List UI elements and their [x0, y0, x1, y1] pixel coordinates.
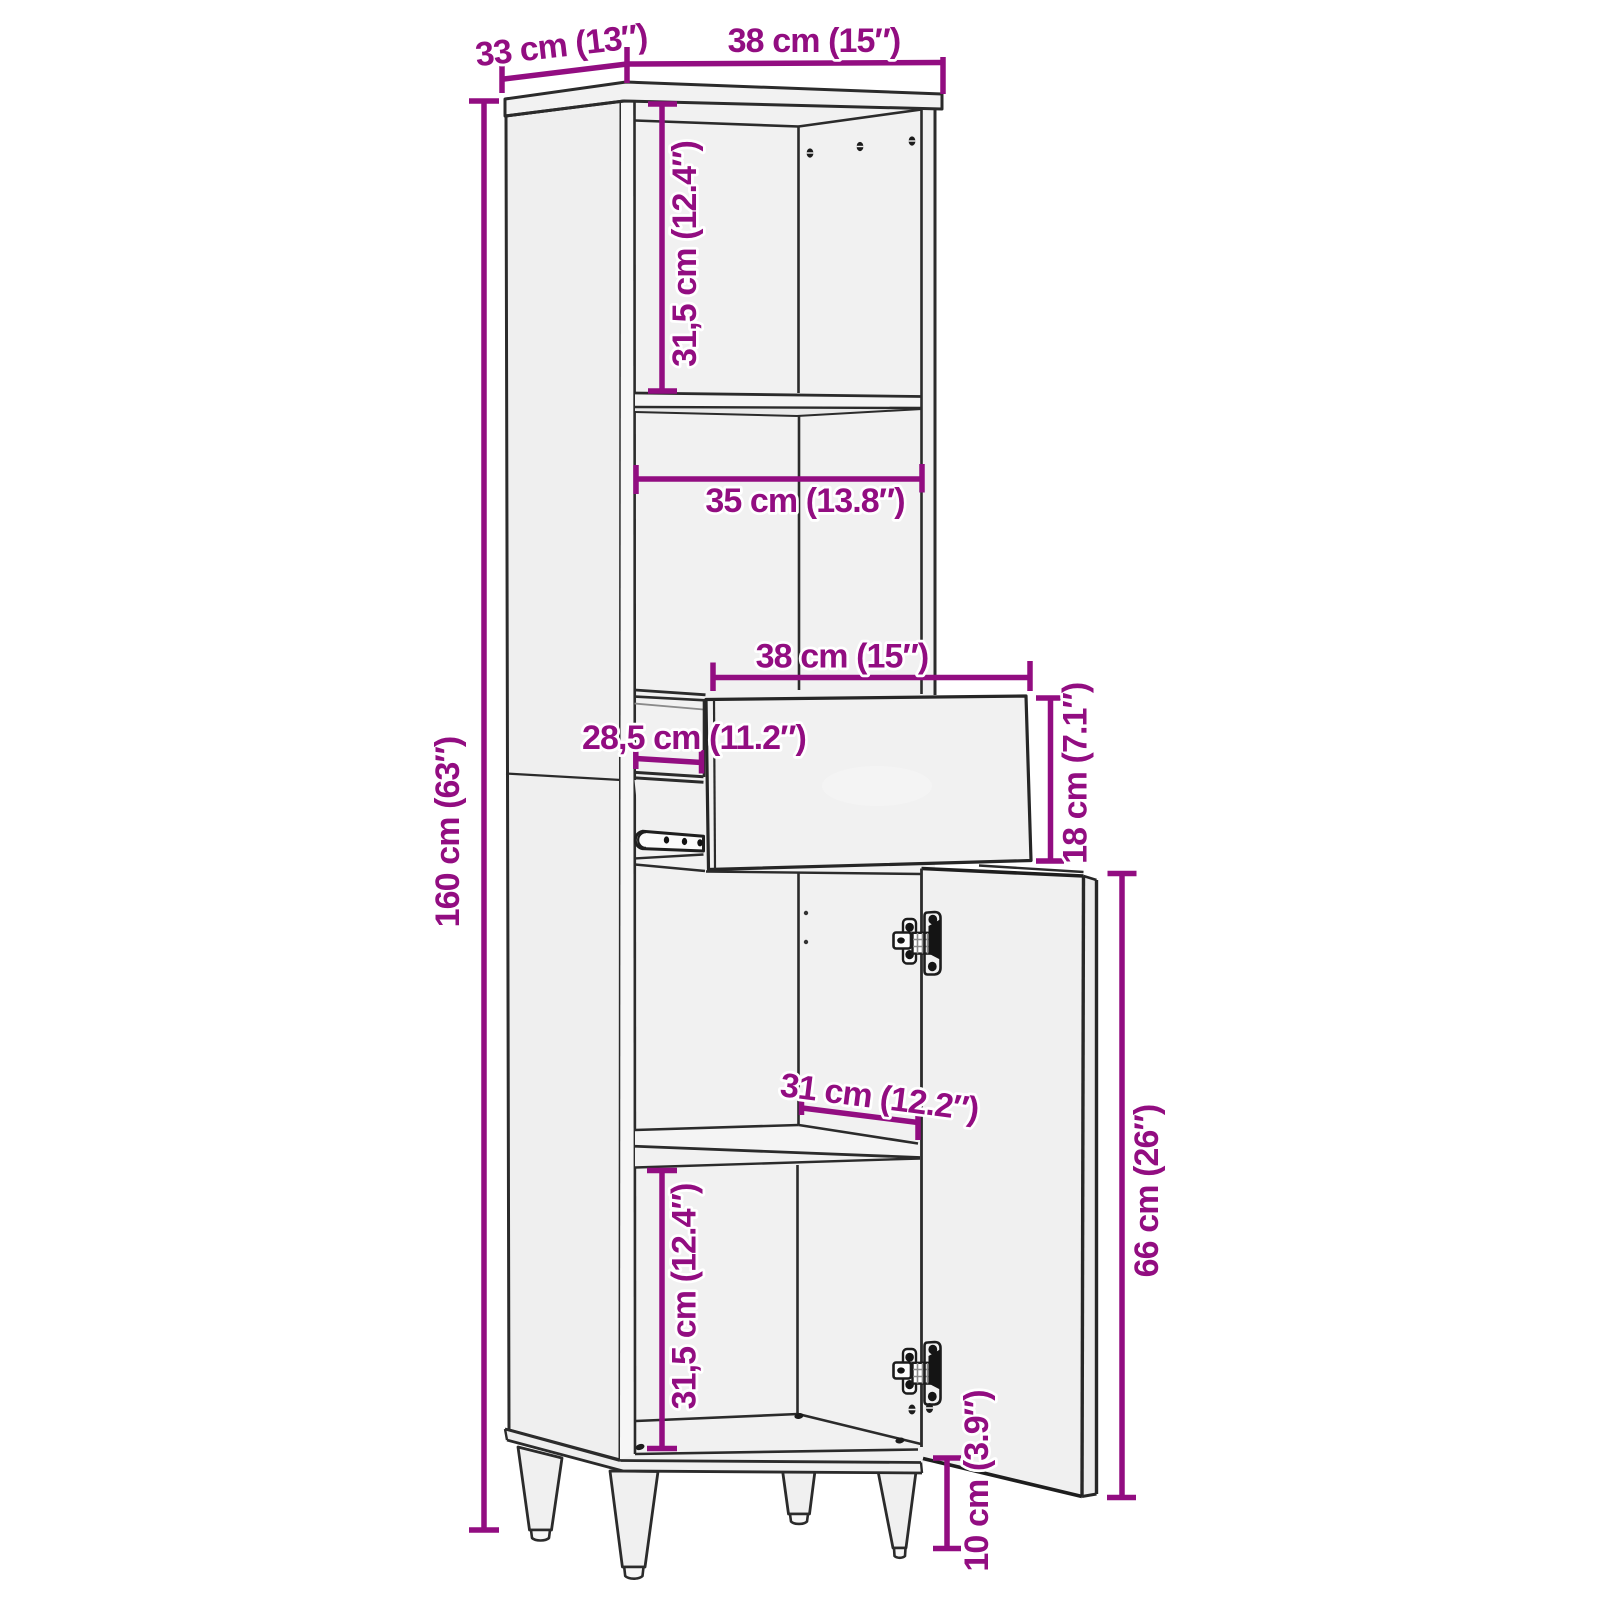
svg-text:28,5 cm (11.2″): 28,5 cm (11.2″): [582, 719, 806, 757]
svg-text:31,5 cm (12.4″): 31,5 cm (12.4″): [666, 141, 704, 367]
svg-text:31,5 cm (12.4″): 31,5 cm (12.4″): [666, 1184, 704, 1410]
svg-text:38 cm (15″): 38 cm (15″): [728, 22, 901, 60]
svg-text:160 cm (63″): 160 cm (63″): [429, 737, 467, 928]
svg-text:66 cm (26″): 66 cm (26″): [1128, 1105, 1166, 1278]
svg-text:35 cm (13.8″): 35 cm (13.8″): [705, 482, 904, 520]
svg-text:18 cm (7.1″): 18 cm (7.1″): [1057, 683, 1095, 864]
svg-text:38 cm (15″): 38 cm (15″): [756, 638, 929, 676]
svg-text:10 cm (3.9″): 10 cm (3.9″): [958, 1390, 996, 1571]
